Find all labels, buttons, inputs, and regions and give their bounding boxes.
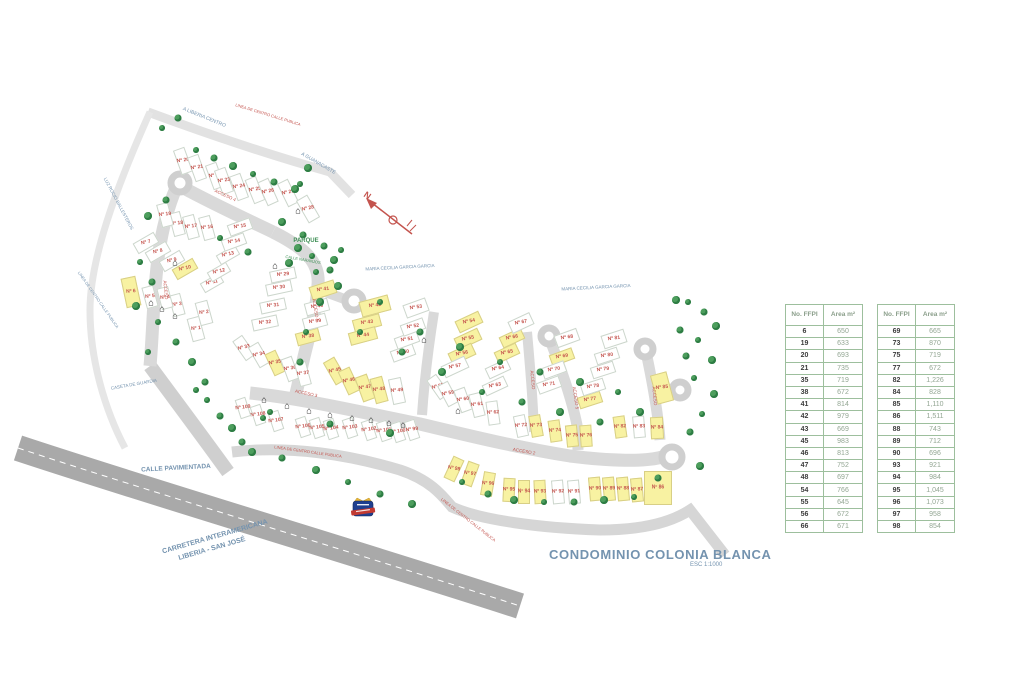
lot-area-cell: 712 [916, 435, 955, 447]
lot-area-cell: 1,073 [916, 496, 955, 508]
tree-icon [695, 337, 701, 343]
tree-icon [636, 408, 644, 416]
table-row: 94984 [878, 472, 955, 484]
lot-number-cell: 98 [878, 521, 916, 533]
lot-number-cell: 55 [786, 496, 824, 508]
tree-icon [541, 499, 547, 505]
tree-icon [217, 235, 223, 241]
house-icon: ⌂ [455, 407, 460, 416]
lot-number-cell: 89 [878, 435, 916, 447]
table-row: 48697 [786, 472, 863, 484]
tree-icon [297, 181, 303, 187]
lot-number-label: Nº 49 [391, 388, 404, 394]
house-icon: ⌂ [272, 262, 277, 271]
lot-area-cell: 735 [824, 362, 863, 374]
tree-icon [267, 409, 273, 415]
tree-icon [278, 218, 286, 226]
table-row: 47752 [786, 460, 863, 472]
house-icon: ⌂ [295, 207, 300, 216]
tree-icon [149, 279, 156, 286]
lot-area-cell: 650 [824, 326, 863, 338]
street-label: ACCESO [529, 370, 535, 389]
table-row: 961,073 [878, 496, 955, 508]
tree-icon [294, 244, 302, 252]
road-entrance [150, 366, 228, 472]
lot-number-label: Nº 6 [126, 289, 136, 295]
tree-icon [597, 419, 604, 426]
house-icon: ⌂ [386, 419, 391, 428]
table-row: 89712 [878, 435, 955, 447]
site-plan-page: { "title": "CONDOMINIO COLONIA BLANCA", … [0, 0, 1024, 683]
lot-area-cell: 693 [824, 350, 863, 362]
tree-icon [144, 212, 152, 220]
lot-number-cell: 20 [786, 350, 824, 362]
house-icon: ⌂ [400, 421, 405, 430]
tree-icon [655, 475, 662, 482]
lot-number-cell: 75 [878, 350, 916, 362]
house-icon: ⌂ [172, 312, 177, 321]
table-row: 6650 [786, 326, 863, 338]
tree-icon [250, 171, 256, 177]
table-row: 21735 [786, 362, 863, 374]
lot-number-label: Nº 95 [503, 487, 515, 492]
tree-icon [571, 499, 578, 506]
table-row: 41814 [786, 399, 863, 411]
culdesac [171, 174, 189, 192]
tree-icon [312, 466, 320, 474]
lot-number-cell: 93 [878, 460, 916, 472]
tree-icon [155, 319, 161, 325]
site-plan-map: N Nº 1Nº 2Nº 3Nº 4Nº 5Nº 6Nº 7Nº 8Nº 9Nº… [0, 0, 768, 683]
table-row: 56672 [786, 508, 863, 520]
tree-icon [297, 359, 304, 366]
lot-areas-table-right: No. FFPIArea m²69665738707571977672821,2… [877, 304, 955, 533]
lot-number-cell: 45 [786, 435, 824, 447]
lot-area-cell: 983 [824, 435, 863, 447]
tree-icon [510, 496, 518, 504]
lot-number-label: Nº 88 [617, 486, 630, 491]
lot-area-cell: 921 [916, 460, 955, 472]
scale-label: ESC 1:1000 [690, 562, 722, 568]
lot-number-label: Nº 2 [199, 310, 209, 316]
tree-icon [321, 243, 328, 250]
lot-number-label: Nº 62 [487, 410, 500, 416]
road-network: N [0, 0, 768, 683]
tree-icon [683, 353, 690, 360]
north-arrow-icon: N [362, 189, 416, 234]
tree-icon [438, 368, 446, 376]
tree-icon [279, 455, 286, 462]
tree-icon [327, 421, 334, 428]
lot-number-cell: 73 [878, 338, 916, 350]
table-row: 75719 [878, 350, 955, 362]
lot-number-label: Nº 91 [568, 489, 581, 494]
tree-icon [217, 413, 224, 420]
table-row: 951,045 [878, 484, 955, 496]
lot-number-cell: 69 [878, 326, 916, 338]
table-row: 69665 [878, 326, 955, 338]
lot-area-cell: 672 [824, 386, 863, 398]
table-row: 55645 [786, 496, 863, 508]
tree-icon [459, 479, 465, 485]
table-row: 54766 [786, 484, 863, 496]
tree-icon [304, 164, 312, 172]
lot-number-label: Nº 83 [633, 424, 646, 429]
lot-number-label: Nº 90 [589, 486, 602, 491]
tree-icon [600, 496, 608, 504]
lot-area-cell: 719 [824, 374, 863, 386]
tree-icon [248, 448, 256, 456]
table-row: 88743 [878, 423, 955, 435]
lot-number-cell: 54 [786, 484, 824, 496]
lot-number-cell: 41 [786, 399, 824, 411]
tree-icon [245, 249, 252, 256]
lot-area-cell: 1,226 [916, 374, 955, 386]
tree-icon [710, 390, 718, 398]
tree-icon [701, 309, 708, 316]
tree-icon [327, 267, 334, 274]
house-icon: ⌂ [284, 402, 289, 411]
lot-area-cell: 697 [824, 472, 863, 484]
house-icon: ⌂ [148, 299, 153, 308]
lot-area-cell: 719 [916, 350, 955, 362]
tree-icon [330, 256, 338, 264]
tree-icon [173, 339, 180, 346]
tree-icon [456, 343, 464, 351]
tree-icon [229, 162, 237, 170]
table-row: 42979 [786, 411, 863, 423]
column-header-no: No. FFPI [878, 305, 916, 326]
tree-icon [712, 322, 720, 330]
tree-icon [556, 408, 564, 416]
lot-area-cell: 854 [916, 521, 955, 533]
lot-number-label: Nº 32 [259, 320, 272, 326]
lot-number-label: Nº 76 [580, 433, 593, 438]
table-row: 90696 [878, 447, 955, 459]
table-row: 19633 [786, 338, 863, 350]
tree-icon [175, 115, 182, 122]
tree-icon [188, 358, 196, 366]
lot-number-label: Nº 86 [652, 486, 664, 491]
table-row: 73870 [878, 338, 955, 350]
table-row: 35719 [786, 374, 863, 386]
lot-number-label: Nº 72 [515, 423, 528, 429]
lot-number-cell: 19 [786, 338, 824, 350]
lot-number-cell: 95 [878, 484, 916, 496]
lot-number-label: Nº 1 [191, 326, 201, 332]
lot-number-cell: 21 [786, 362, 824, 374]
tree-icon [228, 424, 236, 432]
lot-area-cell: 870 [916, 338, 955, 350]
tree-icon [399, 349, 406, 356]
lot-area-cell: 672 [824, 508, 863, 520]
lot-number-label: Nº 29 [277, 272, 290, 278]
tree-icon [271, 179, 278, 186]
tree-icon [145, 349, 151, 355]
tree-icon [497, 359, 503, 365]
tree-icon [691, 375, 697, 381]
table-row: 20693 [786, 350, 863, 362]
tree-icon [485, 491, 492, 498]
tree-icon [239, 439, 246, 446]
tree-icon [386, 429, 394, 437]
tree-icon [576, 378, 584, 386]
house-icon: ⌂ [368, 416, 373, 425]
lot-number-label: Nº 89 [603, 486, 616, 491]
lot-number-cell: 85 [878, 399, 916, 411]
tree-icon [193, 387, 199, 393]
lot-area-cell: 645 [824, 496, 863, 508]
table-row: 66671 [786, 521, 863, 533]
lot-area-cell: 979 [824, 411, 863, 423]
table-row: 45983 [786, 435, 863, 447]
tree-icon [345, 479, 351, 485]
lot-number-cell: 90 [878, 447, 916, 459]
page-title: CONDOMINIO COLONIA BLANCA [549, 547, 772, 562]
lot-number-label: Nº 96 [482, 481, 495, 487]
lot-number-label: Nº 82 [614, 424, 627, 430]
culdesac [637, 341, 653, 357]
house-icon: ⌂ [327, 411, 332, 420]
lot-number-label: Nº 31 [267, 303, 280, 309]
tree-icon [313, 269, 319, 275]
table-row: 851,110 [878, 399, 955, 411]
lot-number-cell: 66 [786, 521, 824, 533]
lot-number-cell: 82 [878, 374, 916, 386]
house-icon: ⌂ [349, 414, 354, 423]
tree-icon [479, 389, 485, 395]
lot-number-cell: 47 [786, 460, 824, 472]
table-row: 98854 [878, 521, 955, 533]
tree-icon [708, 356, 716, 364]
table-row: 46813 [786, 447, 863, 459]
table-row: 93921 [878, 460, 955, 472]
lot-area-cell: 1,511 [916, 411, 955, 423]
lot-number-cell: 56 [786, 508, 824, 520]
tree-icon [677, 327, 684, 334]
column-header-area: Area m² [916, 305, 955, 326]
tree-icon [408, 500, 416, 508]
north-label: N [362, 189, 373, 201]
street-label: ACCESO [162, 280, 168, 299]
tree-icon [615, 389, 621, 395]
tree-icon [696, 462, 704, 470]
tree-icon [699, 411, 705, 417]
lot-areas-table-left: No. FFPIArea m²6650196332069321735357193… [785, 304, 863, 533]
lot-area-cell: 766 [824, 484, 863, 496]
tree-icon [338, 247, 344, 253]
tree-icon [377, 299, 383, 305]
table-row: 861,511 [878, 411, 955, 423]
house-icon: ⌂ [306, 407, 311, 416]
house-icon: ⌂ [261, 396, 266, 405]
table-row: 77672 [878, 362, 955, 374]
lot-number-cell: 84 [878, 386, 916, 398]
table-row: 84828 [878, 386, 955, 398]
lot-number-label: Nº 73 [530, 423, 543, 429]
lot-area-cell: 814 [824, 399, 863, 411]
street-label: ACCESO [651, 386, 657, 405]
lot-area-cell: 813 [824, 447, 863, 459]
lot-area-cell: 665 [916, 326, 955, 338]
column-header-no: No. FFPI [786, 305, 824, 326]
lot-number-label: Nº 92 [552, 489, 565, 494]
lot-number-cell: 96 [878, 496, 916, 508]
lot-number-label: Nº 30 [273, 285, 286, 291]
lot-area-cell: 671 [824, 521, 863, 533]
house-icon: ⌂ [172, 259, 177, 268]
lot-area-cell: 743 [916, 423, 955, 435]
lot-number-label: Nº 93 [534, 489, 546, 494]
lot-number-label: Nº 84 [651, 425, 663, 430]
lot-number-cell: 6 [786, 326, 824, 338]
tree-icon [357, 329, 363, 335]
tree-icon [159, 125, 165, 131]
house-icon: ⌂ [159, 305, 164, 314]
table-row: 43669 [786, 423, 863, 435]
lot-area-cell: 1,110 [916, 399, 955, 411]
tree-icon [672, 296, 680, 304]
lot-area-cell: 752 [824, 460, 863, 472]
tree-icon [537, 369, 544, 376]
lot-area-cell: 696 [916, 447, 955, 459]
lot-area-cell: 633 [824, 338, 863, 350]
house-icon: ⌂ [421, 336, 426, 345]
table-row: 821,226 [878, 374, 955, 386]
culdesac [672, 382, 688, 398]
tree-icon [334, 282, 342, 290]
lot-number-cell: 97 [878, 508, 916, 520]
tree-icon [163, 197, 170, 204]
tree-icon [211, 155, 218, 162]
lot-number-label: Nº 87 [631, 487, 644, 492]
tree-icon [193, 147, 199, 153]
lot-number-cell: 38 [786, 386, 824, 398]
lot-area-cell: 672 [916, 362, 955, 374]
tree-icon [685, 299, 691, 305]
tree-icon [519, 399, 526, 406]
best-western-logo [350, 496, 376, 520]
tree-icon [260, 415, 266, 421]
table-row: 38672 [786, 386, 863, 398]
tree-icon [132, 302, 140, 310]
lot-number-cell: 43 [786, 423, 824, 435]
tree-icon [631, 494, 637, 500]
lot-number-cell: 88 [878, 423, 916, 435]
tree-icon [202, 379, 209, 386]
table-row: 97958 [878, 508, 955, 520]
lot-number-cell: 86 [878, 411, 916, 423]
lot-number-label: Nº 94 [518, 490, 530, 495]
lot-number-cell: 77 [878, 362, 916, 374]
lot-number-cell: 94 [878, 472, 916, 484]
culdesac [662, 447, 682, 467]
lot-number-cell: 46 [786, 447, 824, 459]
lot-area-cell: 958 [916, 508, 955, 520]
lot-number-label: Nº 75 [566, 433, 579, 438]
lot-number-cell: 35 [786, 374, 824, 386]
lot-area-cell: 669 [824, 423, 863, 435]
tree-icon [204, 397, 210, 403]
tree-icon [303, 329, 309, 335]
lot-area-cell: 1,045 [916, 484, 955, 496]
column-header-area: Area m² [824, 305, 863, 326]
lot-area-cell: 984 [916, 472, 955, 484]
tree-icon [377, 491, 384, 498]
lot-area-cell: 828 [916, 386, 955, 398]
tree-icon [137, 259, 143, 265]
lot-number-cell: 48 [786, 472, 824, 484]
street-label: PARQUE [293, 238, 318, 244]
lot-number-label: Nº 74 [549, 428, 562, 434]
tree-icon [687, 429, 694, 436]
lot-number-cell: 42 [786, 411, 824, 423]
